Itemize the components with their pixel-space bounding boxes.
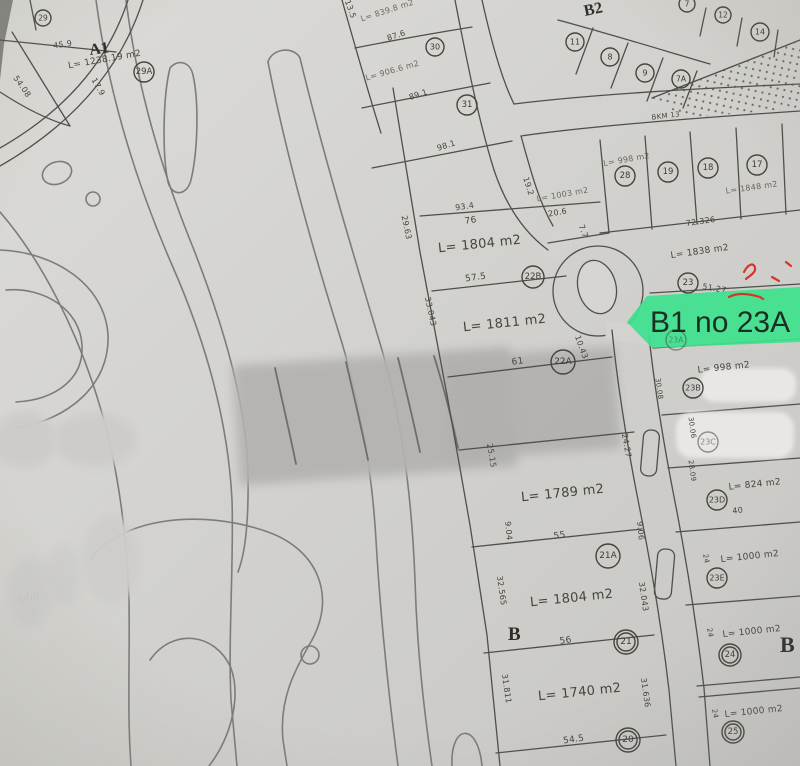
photo-vignette xyxy=(0,0,800,766)
cadastral-map: olin xyxy=(0,0,800,766)
scanned-map-photo: olin xyxy=(0,0,800,766)
